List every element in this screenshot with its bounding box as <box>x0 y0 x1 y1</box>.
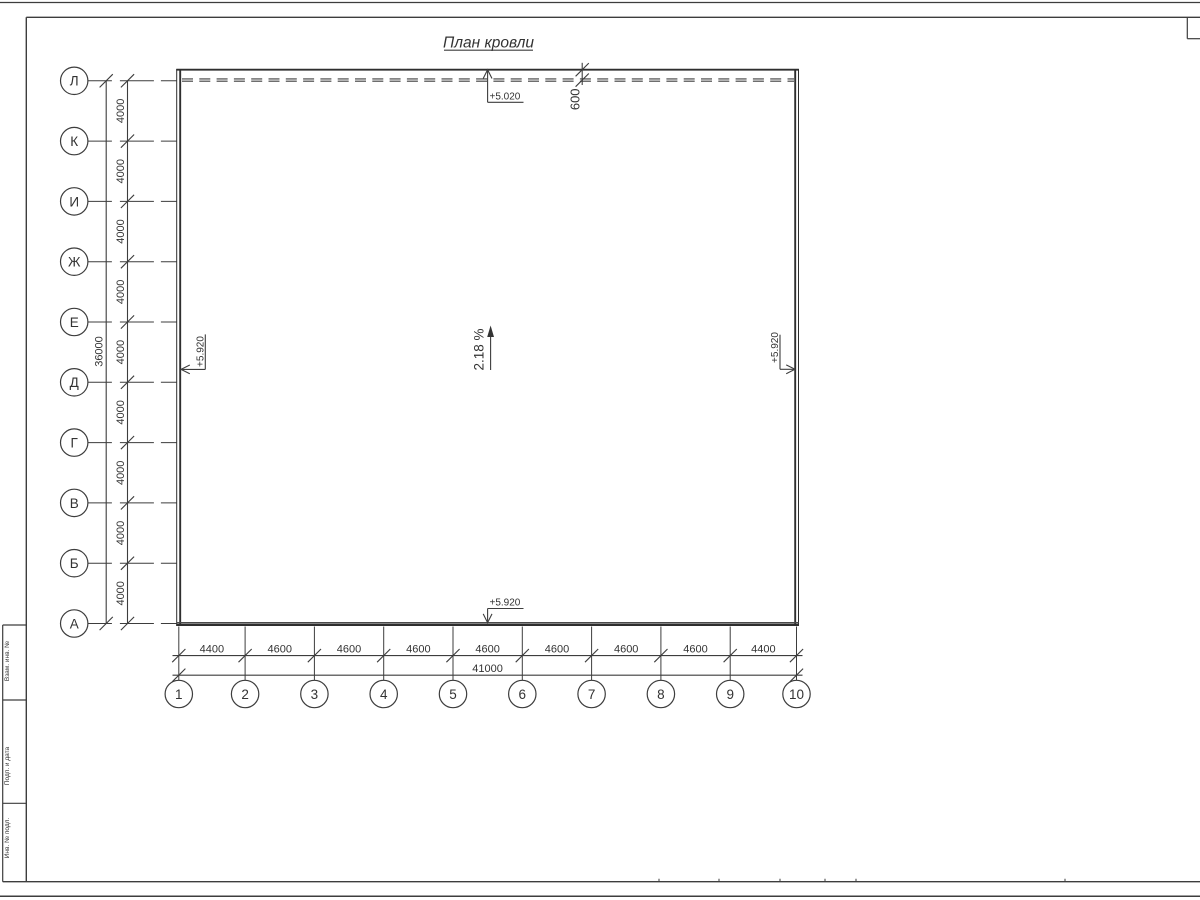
svg-text:5: 5 <box>449 687 457 702</box>
svg-text:4: 4 <box>380 687 388 702</box>
svg-text:4000: 4000 <box>115 340 127 364</box>
svg-text:7: 7 <box>588 687 596 702</box>
svg-text:2.18 %: 2.18 % <box>471 328 486 370</box>
svg-text:Подп. и дата: Подп. и дата <box>4 746 11 785</box>
svg-text:Г: Г <box>71 436 79 451</box>
svg-text:Взам. инв. №: Взам. инв. № <box>4 641 11 681</box>
svg-text:4600: 4600 <box>614 643 638 655</box>
svg-text:4000: 4000 <box>115 521 127 545</box>
svg-text:+5.920: +5.920 <box>770 332 781 363</box>
svg-text:4600: 4600 <box>268 643 292 655</box>
svg-text:4000: 4000 <box>115 581 127 605</box>
svg-text:8: 8 <box>657 687 665 702</box>
svg-text:4000: 4000 <box>115 280 127 304</box>
svg-text:4600: 4600 <box>475 643 499 655</box>
svg-text:Инв. № подл.: Инв. № подл. <box>4 818 11 859</box>
svg-text:4600: 4600 <box>683 643 707 655</box>
svg-text:41000: 41000 <box>472 663 503 675</box>
svg-text:+5.920: +5.920 <box>490 598 521 609</box>
svg-text:К: К <box>70 134 78 149</box>
svg-text:4600: 4600 <box>337 643 361 655</box>
svg-text:36000: 36000 <box>94 336 106 367</box>
svg-text:4000: 4000 <box>115 99 127 123</box>
svg-text:Д: Д <box>70 375 79 390</box>
svg-text:9: 9 <box>726 687 734 702</box>
svg-text:4400: 4400 <box>751 643 775 655</box>
svg-text:3: 3 <box>311 687 319 702</box>
svg-text:+5.020: +5.020 <box>490 91 521 102</box>
svg-text:Е: Е <box>70 315 79 330</box>
svg-text:А: А <box>70 616 79 631</box>
svg-text:1: 1 <box>175 687 183 702</box>
svg-text:4600: 4600 <box>406 643 430 655</box>
svg-text:4400: 4400 <box>200 643 224 655</box>
svg-text:4000: 4000 <box>115 159 127 183</box>
svg-text:10: 10 <box>789 687 804 702</box>
svg-text:И: И <box>69 194 79 209</box>
svg-text:4000: 4000 <box>115 219 127 243</box>
svg-text:+5.920: +5.920 <box>195 336 206 367</box>
svg-text:Б: Б <box>70 556 79 571</box>
svg-text:2: 2 <box>241 687 249 702</box>
svg-text:Л: Л <box>70 74 79 89</box>
svg-text:4600: 4600 <box>545 643 569 655</box>
svg-text:В: В <box>70 496 79 511</box>
svg-text:Ж: Ж <box>68 255 81 270</box>
svg-text:План кровли: План кровли <box>443 35 534 52</box>
svg-text:6: 6 <box>519 687 527 702</box>
svg-text:4000: 4000 <box>115 461 127 485</box>
svg-text:4000: 4000 <box>115 400 127 424</box>
svg-text:600: 600 <box>568 88 583 110</box>
